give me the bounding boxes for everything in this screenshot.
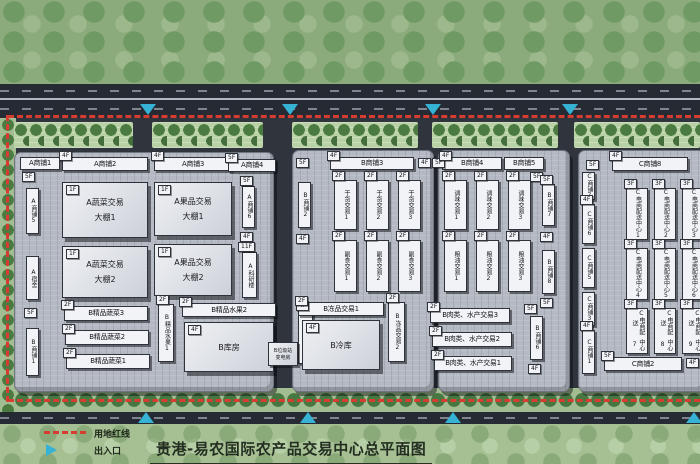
building-label: 变电房 (275, 355, 290, 361)
entrance-arrow (425, 104, 441, 115)
building-label: A果品交易 (174, 257, 211, 268)
floor-tag: 1F (158, 247, 171, 257)
plan-title: 贵港-易农国际农产品交易中心总平面图 (150, 438, 432, 464)
floor-tag: 2F (386, 293, 399, 303)
floor-tag: 4F (151, 151, 164, 161)
building-label: 副食交易3 (398, 240, 421, 292)
floor-tag: 2F (474, 171, 487, 181)
building-label: B商铺8 (542, 250, 555, 294)
floor-tag: 4F (540, 232, 553, 242)
floor-tag: 2F (506, 171, 519, 181)
floor-tag: 2F (396, 231, 409, 241)
building-label: 大棚2 (94, 274, 115, 285)
entrance-arrow (140, 104, 156, 115)
building-label: 调味交易2 (476, 180, 499, 230)
building-label: C电商配送中心9 (682, 308, 700, 354)
floor-tag: 2F (62, 324, 75, 334)
tree-strip (432, 122, 558, 148)
building-label: B精品蔬菜1 (66, 354, 150, 369)
entrance-arrow (445, 412, 461, 423)
floor-tag: 5F (540, 175, 553, 185)
floor-tag: 2F (332, 171, 345, 181)
tree-strip (14, 122, 133, 148)
building-label: A蔬菜交易 (86, 259, 123, 270)
entrance-arrow (686, 412, 700, 423)
building-label: B商铺1 (26, 328, 39, 376)
building-label: B垃圾站 (274, 348, 292, 354)
building-label: 副食交易2 (366, 240, 389, 292)
floor-tag: 4F (580, 195, 593, 205)
floor-tag: 5F (586, 160, 599, 170)
floor-tag: 2F (156, 295, 169, 305)
floor-tag: 5F (601, 351, 614, 361)
floor-tag: 4F (580, 321, 593, 331)
floor-tag: 3F (624, 239, 637, 249)
building-label: C商铺1 (582, 330, 595, 374)
building-label: C电商配送中心6 (682, 248, 700, 300)
floor-tag: 2F (295, 296, 308, 306)
building-label: B肉类、水产交易1 (434, 356, 512, 371)
floor-tag: 4F (59, 151, 72, 161)
building-label: B精品蔬菜3 (64, 306, 148, 321)
building-label: 干货交易2 (366, 180, 389, 230)
floor-tag: 2F (431, 350, 444, 360)
building-label: A商铺3 (154, 157, 232, 171)
floor-tag: 4F (306, 323, 319, 333)
building-label: 粮油交易3 (508, 240, 531, 292)
floor-tag: 4F (188, 325, 201, 335)
legend-entrance-label: 出入口 (94, 444, 121, 457)
floor-tag: 4F (609, 151, 622, 161)
building-label: B肉类、水产交易3 (430, 308, 510, 323)
building-label: B精品水果1 (158, 304, 174, 362)
building-label: B冻品交易2 (388, 302, 405, 362)
floor-tag: 3F (652, 239, 665, 249)
tree-strip (574, 122, 700, 148)
boundary-line-left (6, 115, 9, 402)
building-label: 干货交易1 (334, 180, 357, 230)
floor-tag: 5F (225, 153, 238, 163)
building-label: 副食交易1 (334, 240, 357, 292)
building-label: 调味交易1 (444, 180, 467, 230)
floor-tag: 2F (474, 231, 487, 241)
building-label: C商铺5 (582, 248, 595, 288)
floor-tag: 2F (442, 231, 455, 241)
building-label: C商铺2 (604, 357, 682, 371)
tree-strip (152, 122, 263, 148)
building-label: B冷库 (330, 340, 352, 351)
tree-strip (292, 122, 418, 148)
floor-tag: 4F (439, 151, 452, 161)
floor-tag: 5F (524, 304, 537, 314)
floor-tag: 3F (652, 179, 665, 189)
plan-layer: A商铺15FA商铺5A宿舍5FB商铺1A商铺24FA蔬菜交易大棚11FA蔬菜交易… (0, 0, 700, 464)
boundary-line-bottom (8, 399, 700, 402)
entrance-arrow (300, 412, 316, 423)
floor-tag: 2F (61, 300, 74, 310)
building-label: C电商配送中心8 (654, 308, 676, 354)
floor-tag: 4F (327, 151, 340, 161)
legend-red-line-label: 用地红线 (94, 427, 130, 440)
building-label: C电商配送中心1 (626, 188, 648, 240)
building-label: 大棚1 (94, 212, 115, 223)
floor-tag: 5F (22, 172, 35, 182)
building-label: B商铺6 (530, 316, 543, 360)
building-label: 大棚1 (182, 211, 203, 222)
floor-tag: 2F (364, 171, 377, 181)
floor-tag: 3F (624, 179, 637, 189)
floor-tag: 11F (238, 242, 255, 252)
building-label: A商铺1 (20, 157, 60, 170)
building: B垃圾站变电房 (268, 342, 298, 366)
floor-tag: 5F (540, 298, 553, 308)
floor-tag: 4F (240, 232, 253, 242)
building-label: 干货交易3 (398, 180, 421, 230)
building-label: 大棚2 (182, 272, 203, 283)
building-label: B肉类、水产交易2 (432, 332, 512, 347)
floor-tag: 2F (63, 348, 76, 358)
building-label: C电商配送中心4 (626, 248, 648, 300)
legend-entrance-icon (46, 444, 57, 456)
floor-tag: 2F (429, 326, 442, 336)
floor-tag: 5F (296, 158, 309, 168)
floor-tag: 1F (158, 185, 171, 195)
building-label: A商铺5 (26, 188, 39, 234)
floor-tag: 1F (66, 249, 79, 259)
floor-tag: 5F (24, 308, 37, 318)
legend-red-line-icon (44, 431, 86, 434)
floor-tag: 4F (418, 158, 431, 168)
building-label: C电商配送中心5 (654, 248, 676, 300)
floor-tag: 1F (66, 185, 79, 195)
building-label: A蔬菜交易 (86, 197, 123, 208)
building-label: 调味交易3 (508, 180, 531, 230)
boundary-line-top (8, 115, 700, 118)
building-label: C商铺8 (612, 157, 688, 171)
floor-tag: 3F (624, 299, 637, 309)
floor-tag: 4F (296, 234, 309, 244)
floor-tag: 2F (427, 302, 440, 312)
floor-tag: 2F (332, 231, 345, 241)
floor-tag: 2F (179, 297, 192, 307)
building-label: B精品蔬菜2 (65, 330, 149, 345)
building-label: A果品交易 (174, 196, 211, 207)
site-plan-canvas: A商铺15FA商铺5A宿舍5FB商铺1A商铺24FA蔬菜交易大棚11FA蔬菜交易… (0, 0, 700, 464)
building-label: 粮油交易1 (444, 240, 467, 292)
building-label: C电商配送中心2 (654, 188, 676, 240)
floor-tag: 4F (528, 364, 541, 374)
building-label: A科研楼 (242, 252, 257, 298)
floor-tag: 3F (680, 179, 693, 189)
floor-tag: 2F (506, 231, 519, 241)
building-label: A商铺2 (62, 157, 148, 171)
floor-tag: 2F (442, 171, 455, 181)
floor-tag: 3F (680, 299, 693, 309)
building-label: 粮油交易2 (476, 240, 499, 292)
building-label: B商铺2 (298, 182, 311, 228)
building-label: C商铺6 (582, 204, 595, 244)
floor-tag: 4F (686, 358, 699, 368)
floor-tag: 2F (396, 171, 409, 181)
entrance-arrow (282, 104, 298, 115)
building-label: B冻品交易1 (298, 302, 384, 316)
building-label: C电商配送中心3 (682, 188, 700, 240)
building-label: B商铺5 (504, 157, 544, 170)
floor-tag: 2F (364, 231, 377, 241)
building-label: B商铺3 (330, 157, 414, 170)
building-label: A宿舍 (26, 256, 39, 300)
building-label: C电商配送中心7 (626, 308, 648, 354)
building-label: B精品水果2 (182, 303, 276, 317)
entrance-arrow (138, 412, 154, 423)
building-label: B库房 (218, 342, 240, 353)
floor-tag: 3F (680, 239, 693, 249)
building-label: B商铺7 (542, 184, 555, 226)
floor-tag: 3F (652, 299, 665, 309)
building-label: A商铺6 (242, 186, 255, 228)
entrance-arrow (562, 104, 578, 115)
floor-tag: 5F (240, 176, 253, 186)
